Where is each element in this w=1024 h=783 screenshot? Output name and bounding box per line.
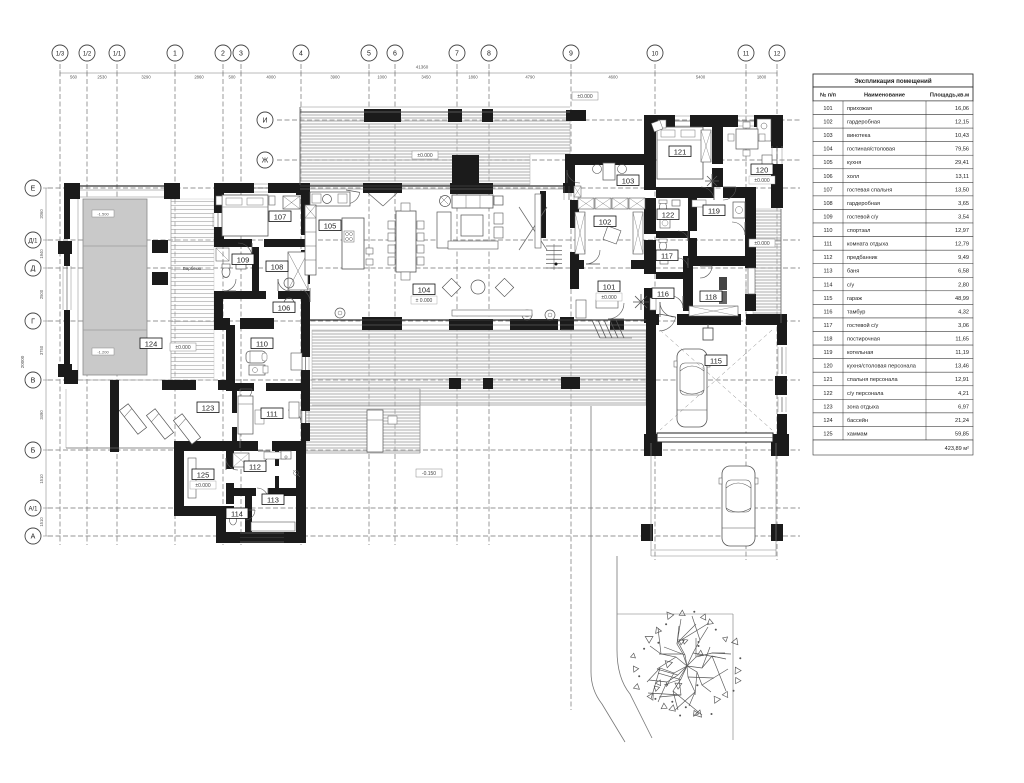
svg-text:кухня/столовая персонала: кухня/столовая персонала	[847, 364, 917, 370]
svg-text:4790: 4790	[525, 75, 535, 80]
svg-text:предбанник: предбанник	[847, 255, 878, 261]
svg-text:102: 102	[823, 120, 832, 126]
svg-text:102: 102	[599, 218, 612, 227]
svg-text:10: 10	[652, 52, 659, 58]
svg-text:тамбур: тамбур	[847, 309, 865, 315]
svg-text:103: 103	[823, 133, 832, 139]
svg-text:114: 114	[231, 510, 243, 519]
svg-text:Д: Д	[31, 266, 36, 273]
svg-text:118: 118	[705, 293, 717, 302]
svg-text:115: 115	[824, 296, 833, 302]
svg-text:21,24: 21,24	[955, 418, 969, 424]
svg-text:3750: 3750	[39, 345, 44, 355]
svg-text:109: 109	[237, 256, 250, 265]
svg-text:±0.000: ±0.000	[754, 178, 769, 184]
svg-text:20000: 20000	[20, 355, 25, 368]
svg-text:116: 116	[657, 290, 669, 299]
svg-text:423,89 м²: 423,89 м²	[945, 446, 970, 452]
svg-text:баня: баня	[847, 269, 859, 275]
svg-text:6,58: 6,58	[958, 269, 969, 275]
svg-text:8: 8	[487, 51, 491, 58]
svg-text:2860: 2860	[194, 75, 204, 80]
svg-text:105: 105	[324, 222, 337, 231]
svg-text:±0.000: ±0.000	[417, 153, 432, 159]
svg-text:104: 104	[418, 286, 431, 295]
svg-text:13,46: 13,46	[955, 364, 969, 370]
svg-text:10,43: 10,43	[955, 133, 969, 139]
svg-text:6,97: 6,97	[958, 404, 969, 410]
svg-text:2,80: 2,80	[958, 282, 969, 288]
svg-text:112: 112	[824, 255, 833, 261]
svg-text:101: 101	[823, 106, 832, 112]
svg-text:79,56: 79,56	[955, 147, 969, 153]
svg-text:3450: 3450	[421, 75, 431, 80]
svg-text:109: 109	[823, 214, 832, 220]
svg-text:постирочная: постирочная	[847, 337, 880, 343]
svg-text:гардеробная: гардеробная	[847, 120, 880, 126]
svg-text:11,19: 11,19	[955, 350, 969, 356]
svg-text:11,65: 11,65	[955, 337, 969, 343]
svg-text:119: 119	[824, 350, 833, 356]
svg-text:Экспликация помещений: Экспликация помещений	[854, 78, 931, 85]
svg-text:Б: Б	[31, 448, 36, 455]
svg-text:110: 110	[256, 340, 268, 349]
svg-text:бассейн: бассейн	[847, 417, 868, 424]
svg-text:холл: холл	[847, 174, 859, 180]
svg-text:Е: Е	[31, 186, 36, 193]
svg-text:121: 121	[674, 148, 687, 157]
svg-text:120: 120	[823, 364, 832, 370]
svg-text:125: 125	[823, 431, 832, 437]
svg-text:9,49: 9,49	[958, 255, 969, 261]
svg-text:121: 121	[823, 377, 832, 383]
svg-text:48,99: 48,99	[955, 296, 969, 302]
svg-text:3: 3	[239, 51, 243, 58]
svg-text:105: 105	[823, 160, 832, 166]
svg-text:котельная: котельная	[847, 350, 873, 356]
svg-text:И: И	[262, 118, 267, 125]
svg-text:гараж: гараж	[847, 296, 862, 302]
svg-text:1800: 1800	[757, 75, 767, 80]
svg-text:107: 107	[274, 213, 287, 222]
svg-text:Площадь,кв.м: Площадь,кв.м	[930, 93, 969, 99]
svg-text:№ п/п: № п/п	[820, 93, 836, 99]
svg-text:108: 108	[271, 263, 284, 272]
svg-text:-0.150: -0.150	[422, 471, 436, 477]
svg-text:12: 12	[774, 52, 781, 58]
svg-text:кухня: кухня	[847, 160, 861, 166]
svg-text:106: 106	[278, 304, 291, 313]
svg-text:±0.000: ±0.000	[577, 94, 592, 100]
svg-text:гостевой с/у: гостевой с/у	[847, 213, 878, 220]
svg-text:1940: 1940	[39, 249, 44, 259]
svg-text:хаммам: хаммам	[847, 431, 868, 437]
svg-text:115: 115	[710, 357, 722, 366]
svg-text:11: 11	[743, 52, 750, 58]
svg-text:3,54: 3,54	[958, 214, 969, 220]
svg-text:3490: 3490	[39, 410, 44, 420]
svg-text:2500: 2500	[39, 289, 44, 299]
svg-text:108: 108	[823, 201, 832, 207]
svg-text:4: 4	[299, 51, 303, 58]
svg-text:3900: 3900	[330, 75, 340, 80]
svg-text:103: 103	[622, 177, 635, 186]
svg-text:Ж: Ж	[262, 158, 269, 165]
svg-text:± 0.000: ± 0.000	[416, 298, 433, 304]
svg-text:1510: 1510	[39, 517, 44, 527]
svg-text:120: 120	[756, 166, 769, 175]
svg-text:560: 560	[70, 75, 78, 80]
svg-text:1/3: 1/3	[56, 52, 65, 58]
svg-text:Наименование: Наименование	[864, 93, 905, 99]
svg-text:9: 9	[569, 51, 573, 58]
svg-text:5400: 5400	[696, 75, 706, 80]
svg-text:1/1: 1/1	[113, 52, 122, 58]
svg-text:13,50: 13,50	[955, 187, 969, 193]
svg-text:±0.000: ±0.000	[175, 345, 190, 351]
svg-text:3290: 3290	[141, 75, 151, 80]
svg-text:124: 124	[823, 418, 832, 424]
svg-text:116: 116	[824, 309, 833, 315]
svg-text:16,06: 16,06	[955, 106, 969, 112]
svg-text:А/1: А/1	[28, 507, 38, 513]
svg-text:-1.200: -1.200	[97, 350, 109, 355]
svg-text:41360: 41360	[416, 65, 429, 70]
svg-text:4000: 4000	[266, 75, 276, 80]
svg-text:4,32: 4,32	[958, 309, 969, 315]
svg-text:2: 2	[221, 51, 225, 58]
svg-text:111: 111	[824, 242, 833, 248]
svg-text:Д/1: Д/1	[28, 239, 38, 245]
svg-text:4,21: 4,21	[958, 391, 969, 397]
svg-text:3,06: 3,06	[958, 323, 969, 329]
svg-text:А: А	[31, 534, 36, 541]
svg-text:с/у: с/у	[847, 282, 854, 288]
svg-text:±0.000: ±0.000	[195, 483, 210, 489]
svg-text:2530: 2530	[97, 75, 107, 80]
svg-text:123: 123	[823, 404, 832, 410]
svg-text:117: 117	[824, 323, 833, 329]
svg-text:гостевой с/у: гостевой с/у	[847, 322, 878, 329]
svg-text:3,65: 3,65	[958, 201, 969, 207]
svg-text:1860: 1860	[468, 75, 478, 80]
svg-text:118: 118	[824, 337, 833, 343]
svg-text:1510: 1510	[39, 474, 44, 484]
svg-text:Барбекю: Барбекю	[183, 266, 202, 271]
svg-text:500: 500	[229, 75, 237, 80]
svg-text:прихожая: прихожая	[847, 106, 872, 112]
svg-text:гостиная/столовая: гостиная/столовая	[847, 147, 895, 153]
svg-text:122: 122	[823, 391, 832, 397]
svg-text:104: 104	[823, 147, 832, 153]
svg-text:4600: 4600	[608, 75, 618, 80]
svg-text:7: 7	[455, 51, 459, 58]
svg-text:123: 123	[202, 404, 215, 413]
svg-text:122: 122	[662, 211, 675, 220]
svg-text:комната отдыха: комната отдыха	[847, 242, 889, 248]
svg-text:29,41: 29,41	[955, 160, 969, 166]
svg-text:±0.000: ±0.000	[601, 295, 616, 301]
svg-text:111: 111	[266, 410, 277, 419]
svg-text:В: В	[31, 378, 36, 385]
svg-text:гардеробная: гардеробная	[847, 201, 880, 207]
svg-text:±0.000: ±0.000	[754, 241, 769, 247]
svg-text:Г: Г	[31, 319, 35, 326]
svg-text:12,97: 12,97	[955, 228, 969, 234]
svg-text:107: 107	[823, 187, 832, 193]
svg-text:с/у персонала: с/у персонала	[847, 391, 884, 397]
svg-text:спальня персонала: спальня персонала	[847, 377, 898, 383]
svg-text:112: 112	[249, 463, 261, 472]
svg-text:12,91: 12,91	[955, 377, 969, 383]
svg-text:114: 114	[824, 282, 833, 288]
svg-text:12,15: 12,15	[955, 120, 969, 126]
svg-text:6: 6	[393, 51, 397, 58]
svg-text:106: 106	[823, 174, 832, 180]
svg-text:113: 113	[267, 496, 279, 505]
svg-text:5: 5	[367, 51, 371, 58]
svg-text:124: 124	[145, 340, 158, 349]
svg-text:спортзал: спортзал	[847, 228, 870, 234]
svg-text:13,11: 13,11	[955, 174, 969, 180]
svg-text:110: 110	[824, 228, 833, 234]
svg-text:винотека: винотека	[847, 133, 871, 139]
svg-text:12,79: 12,79	[955, 242, 969, 248]
svg-text:101: 101	[603, 283, 616, 292]
svg-text:1: 1	[173, 51, 177, 58]
svg-text:-1.500: -1.500	[97, 212, 109, 217]
svg-text:59,85: 59,85	[955, 431, 969, 437]
svg-text:119: 119	[708, 207, 720, 216]
svg-text:зона отдыха: зона отдыха	[847, 404, 880, 410]
svg-text:2060: 2060	[39, 209, 44, 219]
svg-text:1/2: 1/2	[83, 52, 92, 58]
svg-text:125: 125	[197, 471, 210, 480]
svg-text:117: 117	[661, 252, 673, 261]
svg-text:1000: 1000	[377, 75, 387, 80]
svg-text:гостевая спальня: гостевая спальня	[847, 187, 892, 193]
svg-text:113: 113	[824, 269, 833, 275]
